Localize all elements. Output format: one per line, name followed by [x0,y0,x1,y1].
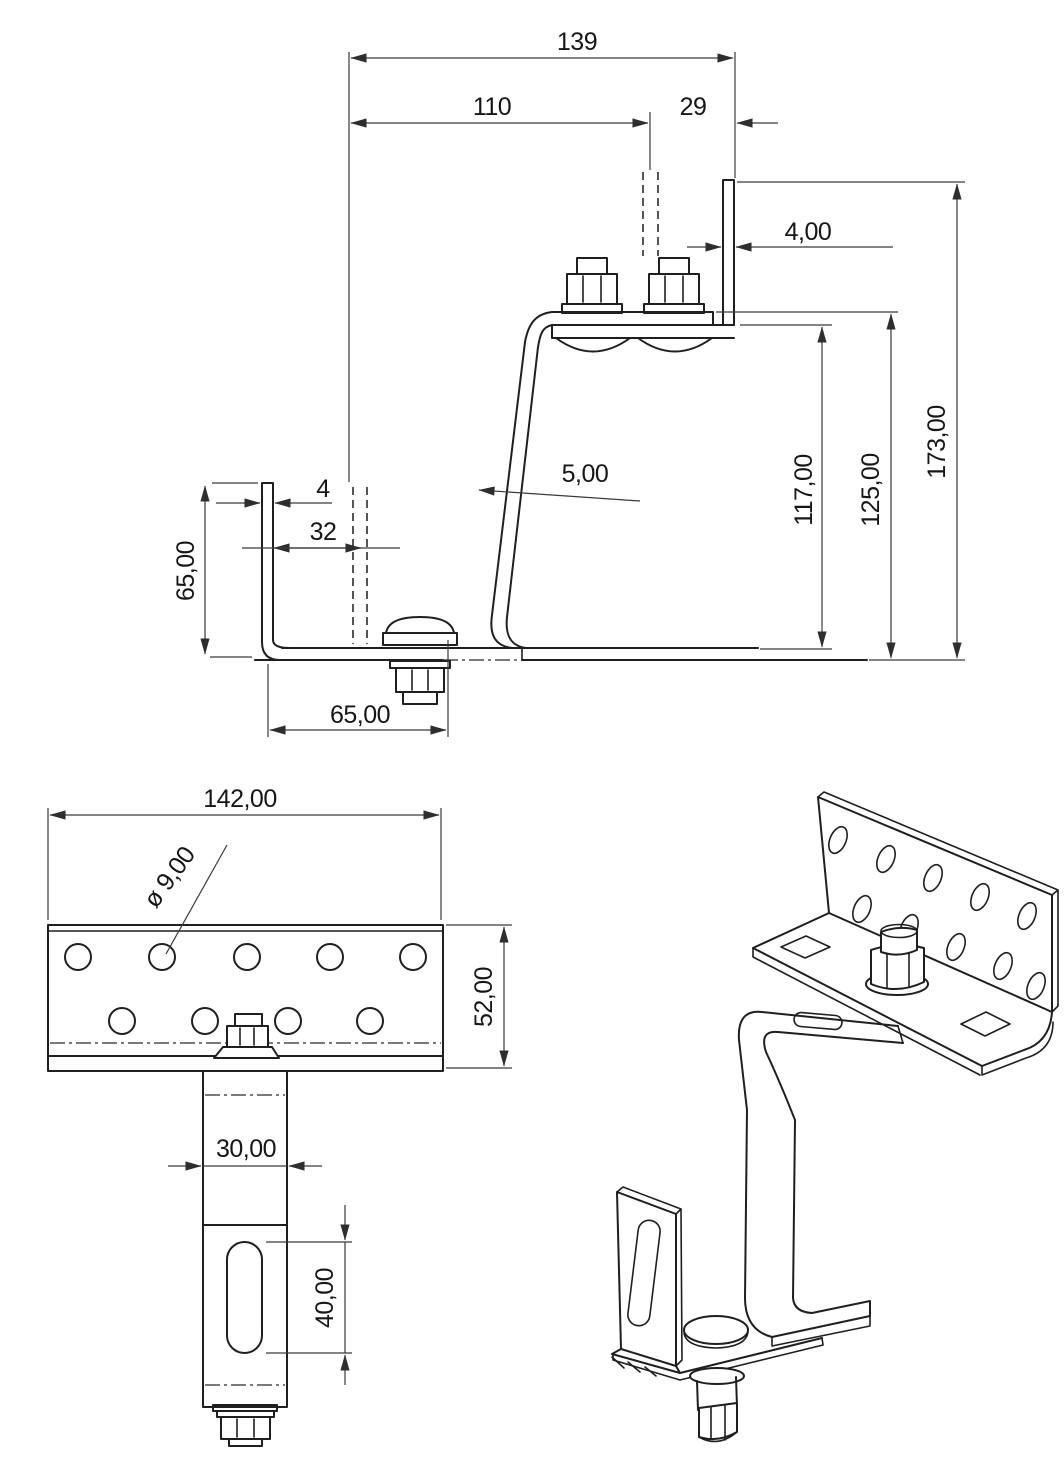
front-view-part [48,925,443,1446]
hex-bolt-right [644,258,704,313]
iso-view [612,792,1058,1441]
dim-65-left-label: 65,00 [172,541,200,601]
hidden-stud-lines [643,172,658,256]
dim-500-leader [479,490,640,501]
column-outline [203,1071,287,1407]
dim-total-width-label: 139 [557,28,597,56]
dim-173-label: 173,00 [923,405,951,478]
side-view-part [255,172,867,704]
angle-vertical-flange [723,180,734,325]
dim-110-label: 110 [473,93,511,121]
dim-125-label: 125,00 [857,453,885,526]
hex-bolt-left [562,258,622,313]
dim-web-thk-label: 5,00 [562,460,609,488]
front-view-dimensions: 142,00 ø 9,00 52,00 30,00 40,00 [48,785,512,1385]
iso-flange-slot-right [961,1012,1010,1036]
iso-holes-top [825,824,1040,932]
hidden-slot-lines [353,487,367,644]
iso-flange-slot-left [781,936,830,958]
dim-dia9-label: ø 9,00 [138,842,201,913]
dim-32-label: 32 [310,518,337,546]
ext-142 [48,808,441,920]
left-flange [262,483,290,660]
dim-29-label: 29 [680,93,707,121]
angle-horizontal-flange [552,325,734,338]
iso-angle-plate [818,792,1058,1012]
dim-65-bottom-label: 65,00 [330,701,390,729]
iso-flange-nut [866,925,928,996]
front-view: 142,00 ø 9,00 52,00 30,00 40,00 [48,785,512,1446]
dim-30-label: 30,00 [216,1135,276,1163]
carriage-bolt-heads [556,338,712,352]
side-view: 139 110 29 4,00 117,00 125,00 173,00 [172,28,965,737]
dim-117-label: 117,00 [790,454,818,526]
plate-center-nut [214,1014,279,1058]
dim-52-label: 52,00 [470,967,498,1027]
dim-flange-thk-label: 4,00 [785,218,832,246]
column-slot [227,1242,262,1353]
iso-l-bracket [612,1187,823,1441]
ext-65-left [210,483,258,657]
bottom-nut [213,1405,277,1446]
iso-hook [739,1012,903,1346]
iso-strap-slot [793,1012,842,1030]
technical-drawing: 139 110 29 4,00 117,00 125,00 173,00 [0,0,1064,1464]
side-view-dimensions: 139 110 29 4,00 117,00 125,00 173,00 [172,28,965,737]
iso-dome-head [684,1316,748,1344]
iso-bottom-nut [690,1368,744,1441]
hook-web-outer [491,312,552,648]
dim-4-label: 4 [316,475,330,503]
hook-web-inner [507,325,552,648]
drawing-sheet: 139 110 29 4,00 117,00 125,00 173,00 [0,0,1064,1464]
iso-bracket-slot [627,1219,662,1327]
ext-40 [266,1242,352,1353]
base-dome-bolt [383,617,457,704]
dim-142-label: 142,00 [203,785,276,813]
hole-row-top [65,944,426,970]
iso-angle-flange [753,913,1053,1075]
dim-40-label: 40,00 [311,1268,339,1328]
